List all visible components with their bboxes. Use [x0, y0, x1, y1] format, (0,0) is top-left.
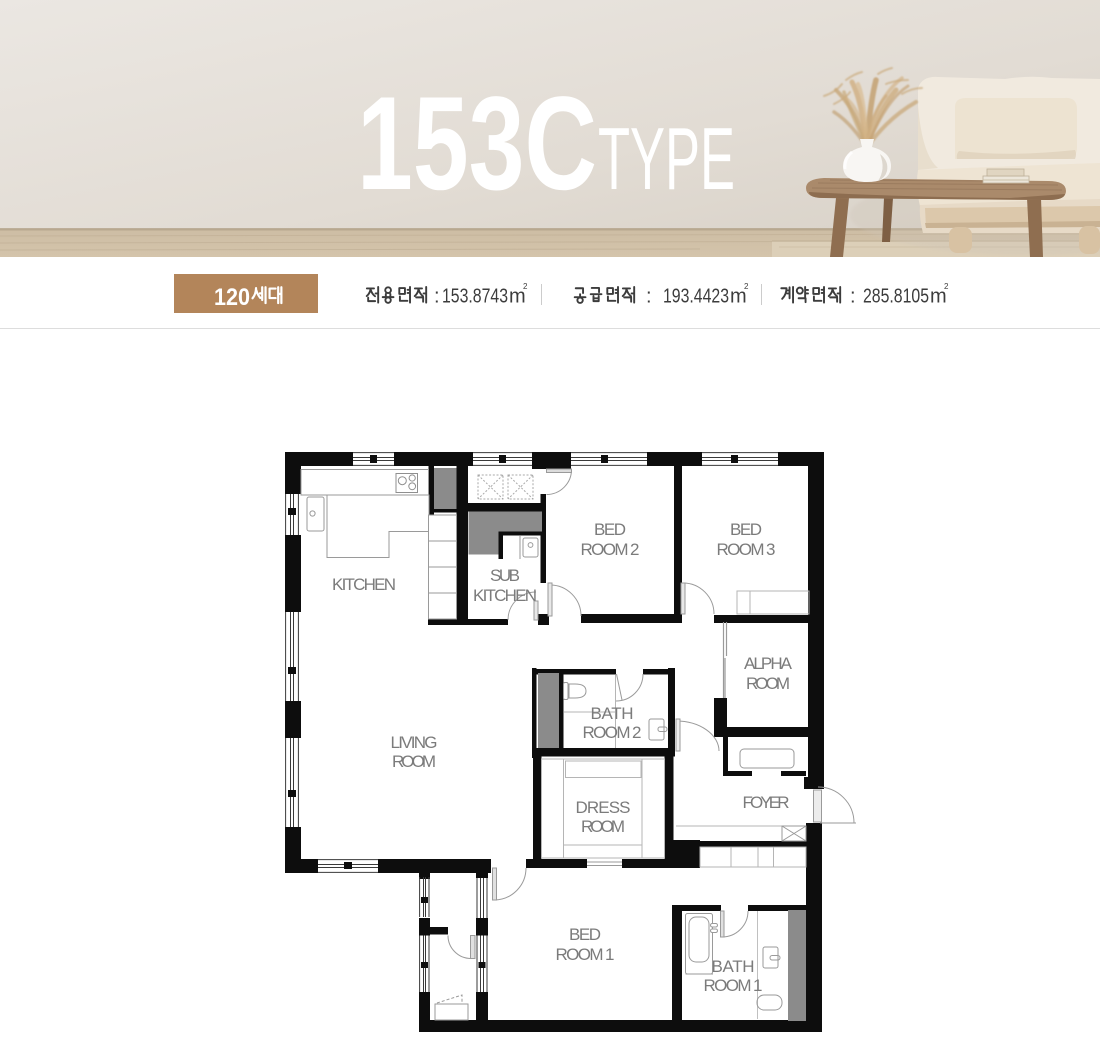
svg-text:BATH: BATH [591, 704, 634, 723]
svg-text:ROOM: ROOM [746, 674, 790, 693]
svg-text:SUB: SUB [490, 566, 520, 585]
svg-text:ROOM: ROOM [392, 752, 436, 771]
svg-text:ROOM: ROOM [581, 817, 625, 836]
svg-text:BED: BED [594, 520, 626, 539]
svg-text:ROOM 2: ROOM 2 [583, 723, 642, 742]
svg-text:ROOM 1: ROOM 1 [556, 945, 615, 964]
svg-text:BATH: BATH [712, 957, 755, 976]
svg-text:FOYER: FOYER [743, 793, 790, 812]
svg-text:ALPHA: ALPHA [744, 654, 793, 673]
svg-text:BED: BED [569, 925, 601, 944]
svg-text:KITCHEN: KITCHEN [332, 575, 396, 594]
svg-text:LIVING: LIVING [391, 733, 438, 752]
svg-text:KITCHEN: KITCHEN [473, 586, 537, 605]
svg-text:ROOM 1: ROOM 1 [704, 976, 763, 995]
svg-text:DRESS: DRESS [576, 798, 631, 817]
svg-text:BED: BED [730, 520, 762, 539]
svg-text:ROOM 2: ROOM 2 [581, 540, 640, 559]
svg-text:ROOM 3: ROOM 3 [717, 540, 776, 559]
